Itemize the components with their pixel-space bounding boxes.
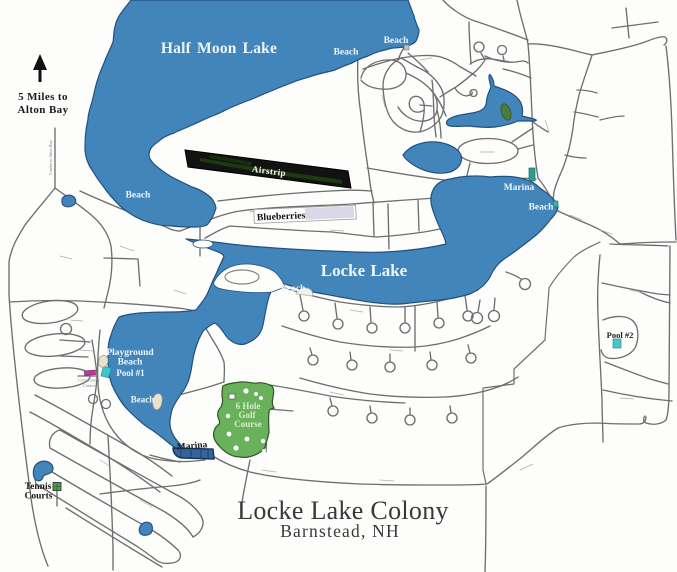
- svg-text:Tennis: Tennis: [25, 482, 52, 492]
- svg-text:Pool #1: Pool #1: [116, 368, 145, 378]
- svg-text:Community: Community: [78, 378, 101, 383]
- svg-text:Beach: Beach: [118, 358, 144, 368]
- svg-text:Course: Course: [234, 419, 262, 429]
- svg-text:Playground: Playground: [106, 348, 154, 358]
- svg-text:Barnstead, NH: Barnstead, NH: [280, 521, 400, 541]
- svg-text:Beach: Beach: [529, 203, 555, 213]
- svg-text:Locke Lake: Locke Lake: [321, 261, 408, 280]
- svg-text:Half Moon Lake: Half Moon Lake: [161, 40, 277, 57]
- svg-text:Beach: Beach: [281, 284, 307, 294]
- svg-text:5 miles to Alton Bay: 5 miles to Alton Bay: [48, 139, 53, 175]
- svg-text:Center: Center: [83, 383, 96, 388]
- svg-text:Beach: Beach: [126, 191, 152, 201]
- svg-text:Pool #2: Pool #2: [607, 330, 634, 340]
- svg-text:Beach: Beach: [384, 36, 410, 46]
- svg-text:5 Miles to: 5 Miles to: [18, 91, 68, 103]
- svg-text:Alton Bay: Alton Bay: [18, 104, 69, 116]
- svg-text:Courts: Courts: [25, 492, 53, 502]
- svg-text:Beach: Beach: [131, 395, 155, 405]
- svg-text:Beach: Beach: [334, 48, 360, 58]
- svg-text:Marina: Marina: [504, 183, 535, 193]
- svg-text:Blueberries: Blueberries: [257, 210, 306, 223]
